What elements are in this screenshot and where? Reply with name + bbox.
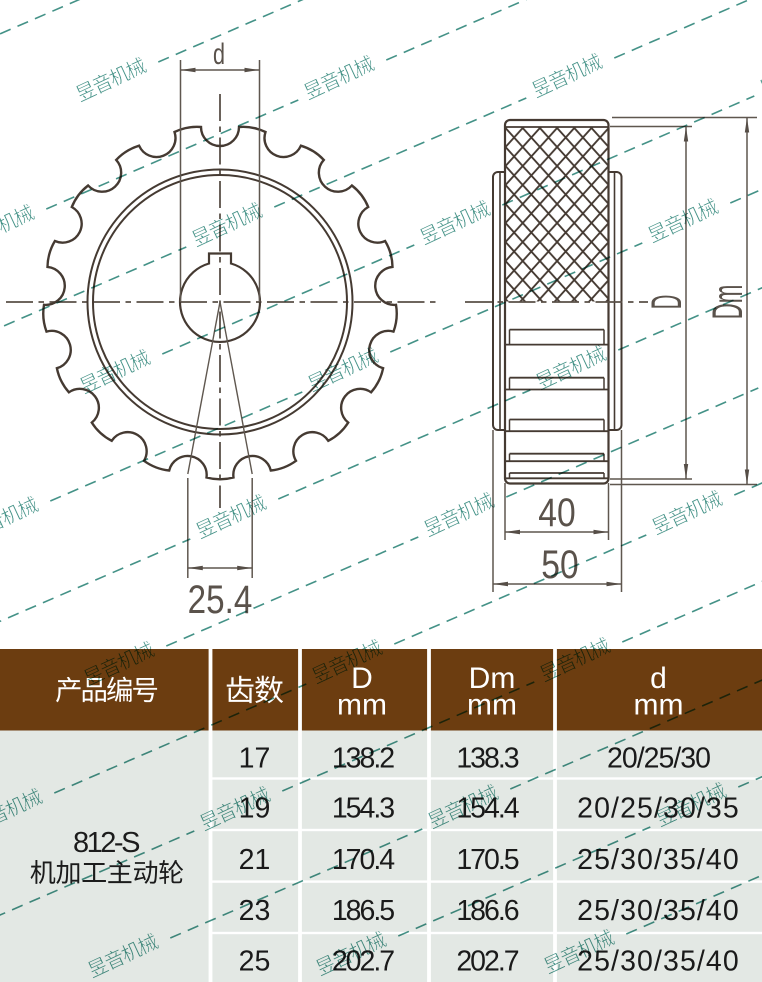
- svg-text:25/30/35/40: 25/30/35/40: [577, 844, 740, 876]
- svg-text:25/30/35/40: 25/30/35/40: [577, 895, 740, 927]
- svg-text:23: 23: [239, 895, 271, 927]
- svg-text:186.6: 186.6: [456, 895, 518, 927]
- svg-text:186.5: 186.5: [332, 895, 394, 927]
- svg-text:25.4: 25.4: [188, 577, 253, 622]
- svg-text:812-S: 812-S: [73, 827, 140, 859]
- svg-text:138.3: 138.3: [456, 743, 518, 775]
- svg-text:25: 25: [239, 945, 271, 977]
- svg-text:mm: mm: [337, 689, 387, 722]
- svg-text:17: 17: [239, 743, 271, 775]
- svg-text:D: D: [644, 295, 691, 310]
- svg-text:50: 50: [541, 542, 578, 586]
- svg-text:154.3: 154.3: [332, 793, 394, 825]
- svg-text:d: d: [213, 36, 225, 70]
- svg-text:21: 21: [239, 844, 271, 876]
- svg-text:170.5: 170.5: [456, 844, 518, 876]
- svg-text:138.2: 138.2: [332, 743, 394, 775]
- svg-text:20/25/30: 20/25/30: [607, 743, 710, 775]
- svg-text:40: 40: [538, 490, 575, 534]
- svg-text:202.7: 202.7: [456, 945, 518, 977]
- svg-text:20/25/30/35: 20/25/30/35: [577, 793, 740, 825]
- svg-text:170.4: 170.4: [332, 844, 395, 876]
